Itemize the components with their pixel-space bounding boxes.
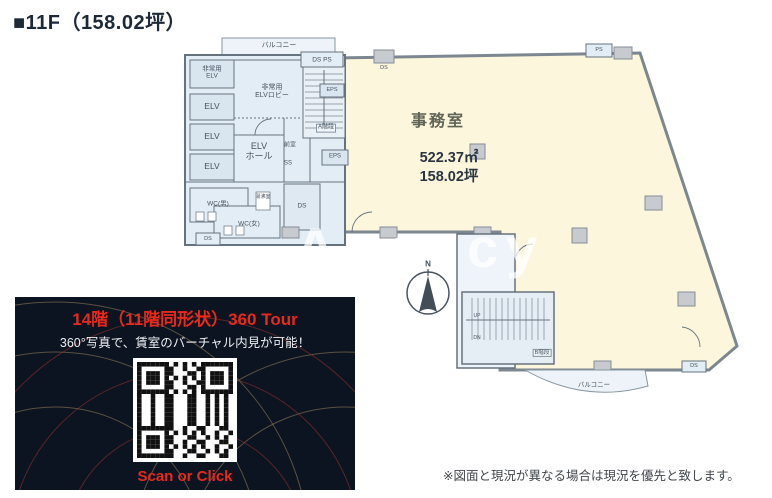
- ps-label: PS: [595, 47, 602, 53]
- wc-women-label: WC(女): [238, 220, 260, 227]
- elv-label: ELV: [204, 132, 219, 142]
- office-area-m2: 522.37㎡: [420, 150, 479, 166]
- office-name-label: 事務室: [411, 113, 465, 131]
- qr-code[interactable]: [133, 358, 237, 462]
- ds-label: DS: [690, 363, 698, 369]
- anteroom-label: 前室: [284, 143, 296, 150]
- tour-subtitle: 360°写真で、賃室のバーチャル内見が可能！: [15, 332, 355, 351]
- elv-label: ELV: [204, 162, 219, 172]
- north-label: N: [425, 261, 431, 270]
- stair-b-label: B階段: [533, 349, 552, 357]
- wc-men-label: WC(男): [207, 200, 229, 207]
- kitchenette-label: 湯沸室: [255, 195, 270, 201]
- dn-label: DN: [473, 336, 480, 342]
- tour-title: 14階（11階同形状）360 Tour: [15, 305, 355, 330]
- stair-a-label: A階段: [316, 124, 336, 133]
- emergency-elv-lobby-label: 非常用 ELVロビー: [255, 84, 289, 100]
- emergency-elv-label: 非常用 ELV: [202, 66, 222, 81]
- elv-hall-label: ELV ホール: [245, 141, 272, 161]
- office-area-tsubo: 158.02坪: [420, 169, 479, 185]
- disclaimer: ※図面と現況が異なる場合は現況を優先と致します。: [443, 465, 740, 484]
- ds-label: DS: [380, 65, 388, 71]
- tour-360-panel: 14階（11階同形状）360 Tour 360°写真で、賃室のバーチャル内見が可…: [15, 297, 355, 490]
- ds-room-label: DS: [297, 202, 306, 209]
- ds-ps-label: DS PS: [312, 56, 332, 63]
- elv-label: ELV: [204, 102, 219, 112]
- ss-label: SS: [284, 161, 292, 168]
- corner-column: [614, 47, 632, 59]
- eps-label: EPS: [326, 87, 337, 93]
- balcony-bottom-label: バルコニー: [578, 381, 610, 388]
- ds-label: DS: [204, 236, 212, 242]
- tour-cta-link[interactable]: Scan or Click: [15, 468, 355, 485]
- balcony-top-label: バルコニー: [262, 42, 297, 50]
- compass-icon: [407, 269, 449, 314]
- top-ds-column: [374, 50, 394, 63]
- eps-label: EPS: [329, 154, 341, 161]
- up-label: UP: [474, 314, 481, 320]
